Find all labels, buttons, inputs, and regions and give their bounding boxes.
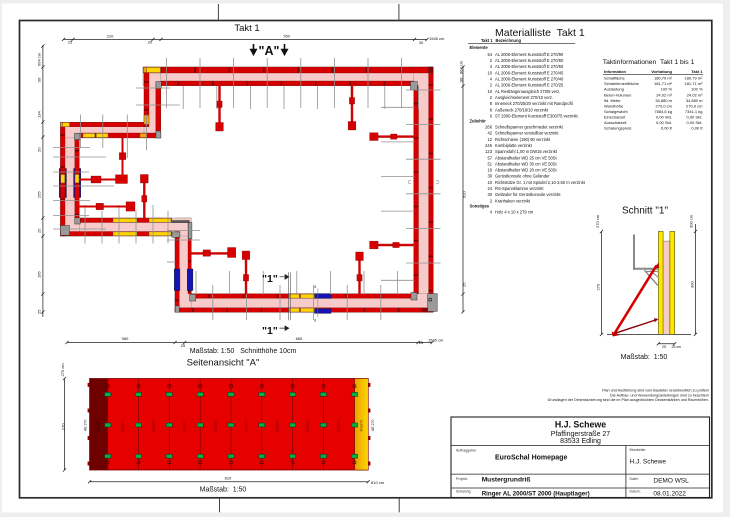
svg-text:Sonstiges: Sonstiges: [470, 203, 490, 208]
svg-text:24,02 m³: 24,02 m³: [656, 92, 672, 97]
svg-text:0,00 Std.: 0,00 Std.: [656, 120, 672, 125]
svg-text:Ausgleichselement 270/10 verz.: Ausgleichselement 270/10 verz.: [495, 95, 553, 100]
svg-text:300: 300: [690, 281, 695, 288]
svg-text:Kranhaken verzinkt: Kranhaken verzinkt: [495, 198, 531, 203]
svg-text:Datei:: Datei:: [630, 477, 639, 481]
svg-text:270 cm: 270 cm: [595, 214, 600, 228]
svg-text:Inneneck 270/25/20 verzinkt mi: Inneneck 270/25/20 verzinkt mit Randprof…: [495, 101, 573, 106]
svg-text:Ausschalzeit: Ausschalzeit: [604, 120, 627, 125]
svg-text:Wandhöhe: Wandhöhe: [604, 103, 624, 108]
svg-text:270: 270: [596, 283, 601, 290]
svg-text:AL 2000-Element Kunststoff E 2: AL 2000-Element Kunststoff E 270/25: [495, 83, 564, 88]
svg-text:"1": "1": [262, 273, 278, 285]
svg-text:7341,1 kg: 7341,1 kg: [685, 109, 703, 114]
svg-text:EuroSchal Homepage: EuroSchal Homepage: [495, 455, 567, 462]
svg-text:54: 54: [487, 52, 492, 57]
svg-text:760: 760: [283, 33, 290, 38]
svg-text:0,00 Std.: 0,00 Std.: [656, 115, 672, 120]
svg-text:AL 2000-Element Kunststoff E 2: AL 2000-Element Kunststoff E 270/50: [495, 64, 564, 69]
svg-text:AL 2000-Element Kunststoff E 2: AL 2000-Element Kunststoff E 270/60: [495, 58, 564, 63]
svg-text:"A": "A": [259, 44, 280, 58]
svg-text:Außeneck 270/10/10 verzinkt: Außeneck 270/10/10 verzinkt: [495, 107, 549, 112]
svg-text:90x270: 90x270: [152, 420, 156, 432]
svg-text:25: 25: [37, 228, 42, 233]
svg-text:Pfaffingerstraße 27: Pfaffingerstraße 27: [551, 431, 611, 438]
svg-text:980: 980: [122, 336, 129, 341]
svg-text:810 cm: 810 cm: [371, 480, 385, 485]
svg-text:Richtstütze Gr. 1 mit Spindel: Richtstütze Gr. 1 mit Spindel 2,10-3,60 …: [495, 180, 586, 185]
svg-text:10: 10: [487, 180, 492, 185]
svg-text:100 %: 100 %: [691, 87, 703, 92]
svg-text:0,00 €: 0,00 €: [691, 126, 703, 131]
svg-text:Bearbeiter: Bearbeiter: [630, 448, 647, 452]
svg-text:42: 42: [487, 131, 492, 136]
svg-text:Maßstab: 1:50 Schnitthöhe 10: Maßstab: 1:50 Schnitthöhe 10cm: [190, 348, 297, 355]
svg-text:20: 20: [37, 147, 42, 152]
svg-text:0,00 €: 0,00 €: [661, 126, 673, 131]
svg-text:lfd. Meter: lfd. Meter: [604, 98, 621, 103]
svg-text:90x270: 90x270: [214, 420, 218, 432]
svg-text:50x270: 50x270: [96, 420, 100, 432]
svg-text:270,0 cm: 270,0 cm: [656, 103, 673, 108]
svg-text:Richtschiene (190) 90 verzinkt: Richtschiene (190) 90 verzinkt: [495, 137, 551, 142]
svg-text:H.J. Schewe: H.J. Schewe: [555, 420, 606, 430]
svg-text:Grundlagen der Dimensionierung: Grundlagen der Dimensionierung sind die …: [547, 398, 709, 402]
svg-text:10: 10: [487, 89, 492, 94]
svg-text:ST 2000-Element Kunststoff E30: ST 2000-Element Kunststoff E300/75 verzi…: [495, 113, 579, 118]
svg-text:Beton-Volumen: Beton-Volumen: [604, 92, 631, 97]
svg-text:Auslastung: Auslastung: [604, 87, 624, 92]
svg-text:Schnellspanner geschmiedet ver: Schnellspanner geschmiedet verzinkt: [495, 125, 564, 130]
svg-text:Die Aufbau- und Verwendungsanl: Die Aufbau- und Verwendungsanleitungen s…: [610, 393, 709, 397]
svg-text:180,79 m²: 180,79 m²: [684, 76, 703, 81]
svg-text:RS-Spannklamme verzinkt: RS-Spannklamme verzinkt: [495, 186, 544, 191]
svg-text:181,71 m²: 181,71 m²: [684, 81, 703, 86]
svg-text:90x270: 90x270: [121, 420, 125, 432]
svg-text:'30': '30': [458, 77, 463, 83]
svg-text:Taktinformationen Takt 1 bis: Taktinformationen Takt 1 bis 1: [603, 59, 695, 66]
svg-text:664 cm: 664 cm: [458, 60, 463, 74]
svg-text:134: 134: [37, 111, 42, 118]
svg-text:Abstandhalter WD 25 cm VE 50St: Abstandhalter WD 25 cm VE 50St: [495, 155, 558, 160]
svg-text:10: 10: [487, 70, 492, 75]
svg-text:25: 25: [37, 309, 42, 314]
svg-text:246: 246: [485, 143, 493, 148]
svg-text:Projekt:: Projekt:: [456, 477, 468, 481]
svg-text:AL Restlängenausgleich 270/5 v: AL Restlängenausgleich 270/5 verz.: [495, 89, 560, 94]
svg-text:25: 25: [662, 345, 666, 349]
svg-text:270: 270: [61, 423, 66, 430]
svg-text:Ringer AL 2000/ST 2000 (Hauptl: Ringer AL 2000/ST 2000 (Hauptlager): [482, 490, 590, 497]
svg-text:Spannstahl 1,00 m DW15 verzink: Spannstahl 1,00 m DW15 verzinkt: [495, 149, 558, 154]
svg-text:0,00 Std.: 0,00 Std.: [686, 115, 702, 120]
svg-text:Schalung: Schalung: [456, 490, 471, 494]
svg-text:Schalgewicht: Schalgewicht: [604, 109, 628, 114]
svg-text:Holz 4 x 10 x 279 cm: Holz 4 x 10 x 279 cm: [495, 210, 534, 215]
svg-text:Takt 1: Takt 1: [691, 69, 703, 74]
svg-text:1545 cm: 1545 cm: [429, 36, 445, 41]
svg-text:210: 210: [107, 33, 114, 38]
svg-text:810: 810: [225, 475, 232, 480]
svg-text:Schnitt "1": Schnitt "1": [622, 205, 668, 216]
svg-text:Geländer für Gerüstkonsole ver: Geländer für Gerüstkonsole verzinkt: [495, 192, 561, 197]
svg-text:Takt 1: Takt 1: [234, 23, 259, 34]
svg-text:30: 30: [487, 174, 492, 179]
svg-text:Kombiplatte verzinkt: Kombiplatte verzinkt: [495, 143, 533, 148]
svg-text:1545 cm: 1545 cm: [428, 338, 444, 343]
svg-text:24,02 m³: 24,02 m³: [687, 92, 703, 97]
svg-text:Takt 1: Takt 1: [481, 38, 493, 43]
svg-text:51: 51: [487, 161, 492, 166]
svg-text:Seitenansicht "A": Seitenansicht "A": [187, 358, 260, 369]
svg-text:Maßstab: 1:50: Maßstab: 1:50: [200, 487, 247, 494]
svg-text:30: 30: [419, 40, 424, 45]
svg-text:AL 2000-Element Kunststoff E 2: AL 2000-Element Kunststoff E 270/45: [495, 70, 564, 75]
svg-text:Abstandhalter WD 20 cm VE 50St: Abstandhalter WD 20 cm VE 50St: [495, 168, 558, 173]
svg-text:Gerüstkonsole ohne Geländer: Gerüstkonsole ohne Geländer: [495, 174, 550, 179]
svg-text:90x270: 90x270: [275, 420, 279, 432]
svg-text:25: 25: [181, 343, 186, 348]
svg-text:Mustergrundriß: Mustergrundriß: [482, 477, 531, 484]
svg-text:Auftraggeber: Auftraggeber: [456, 449, 477, 453]
svg-text:AE 270: AE 270: [371, 419, 375, 431]
svg-text:Vorhaltung: Vorhaltung: [651, 69, 672, 74]
svg-text:'30': '30': [37, 77, 42, 83]
svg-text:270 cm: 270 cm: [60, 363, 65, 377]
svg-text:"1": "1": [262, 325, 278, 337]
svg-text:57: 57: [487, 155, 492, 160]
svg-text:270,0 cm: 270,0 cm: [686, 103, 703, 108]
svg-text:DEMO WSL: DEMO WSL: [653, 477, 689, 484]
svg-text:Abstandhalter WD 30 cm VE 50St: Abstandhalter WD 30 cm VE 50St: [495, 161, 558, 166]
svg-text:Zubehör: Zubehör: [470, 118, 487, 123]
svg-text:123: 123: [485, 149, 493, 154]
svg-text:Schnellspanner verstellbar ver: Schnellspanner verstellbar verzinkt: [495, 131, 559, 136]
svg-text:181,71 m²: 181,71 m²: [654, 81, 673, 86]
svg-text:266: 266: [485, 125, 493, 130]
svg-text:H.J. Schewe: H.J. Schewe: [630, 459, 667, 466]
svg-text:AE 270: AE 270: [84, 419, 88, 431]
svg-text:195: 195: [37, 271, 42, 278]
svg-text:30: 30: [487, 192, 492, 197]
svg-text:20: 20: [148, 40, 153, 45]
svg-text:83533 Edling: 83533 Edling: [560, 438, 601, 445]
svg-text:255: 255: [37, 191, 42, 198]
svg-text:40x270: 40x270: [360, 420, 364, 432]
svg-text:Information: Information: [604, 69, 627, 74]
svg-text:12: 12: [487, 137, 492, 142]
svg-text:8: 8: [314, 285, 316, 289]
svg-text:Einschalzeit: Einschalzeit: [604, 115, 626, 120]
svg-text:Elemente: Elemente: [470, 45, 489, 50]
svg-text:100 %: 100 %: [661, 87, 673, 92]
svg-text:AL 2000-Element Kunststoff E 2: AL 2000-Element Kunststoff E 270/90: [495, 52, 564, 57]
svg-text:90x270: 90x270: [337, 420, 341, 432]
svg-text:665: 665: [296, 336, 303, 341]
svg-text:34,880 m: 34,880 m: [686, 98, 703, 103]
svg-text:25: 25: [462, 282, 467, 287]
svg-text:Plan und Ausführung sind vom B: Plan und Ausführung sind vom Bauleiter v…: [602, 389, 709, 393]
svg-text:AL 2000-Element Kunststoff E 2: AL 2000-Element Kunststoff E 270/40: [495, 77, 564, 82]
svg-text:8: 8: [314, 318, 316, 322]
svg-text:25 cm: 25 cm: [672, 345, 682, 349]
svg-text:18: 18: [487, 168, 492, 173]
svg-text:Bezeichnung: Bezeichnung: [496, 38, 522, 43]
svg-text:7884,6 kg: 7884,6 kg: [654, 109, 672, 114]
svg-text:90x270: 90x270: [306, 420, 310, 432]
svg-text:24: 24: [487, 186, 492, 191]
svg-text:620: 620: [462, 191, 467, 198]
svg-text:300 cm: 300 cm: [689, 214, 694, 228]
svg-text:0,00 Std.: 0,00 Std.: [686, 120, 702, 125]
svg-text:Schalelementfläche: Schalelementfläche: [604, 81, 640, 86]
svg-text:90x270: 90x270: [245, 420, 249, 432]
svg-text:25: 25: [68, 40, 73, 45]
svg-text:Maßstab: 1:50: Maßstab: 1:50: [621, 354, 668, 361]
svg-text:Schalfläche: Schalfläche: [604, 76, 625, 81]
svg-text:90x270: 90x270: [183, 420, 187, 432]
svg-text:Schalungspreis: Schalungspreis: [604, 126, 631, 131]
svg-text:664 cm: 664 cm: [37, 52, 42, 66]
svg-text:25: 25: [419, 340, 424, 345]
svg-text:180,79 m²: 180,79 m²: [654, 76, 673, 81]
svg-text:34,880 m: 34,880 m: [655, 98, 672, 103]
svg-text:Datum:: Datum:: [630, 490, 641, 494]
svg-text:08.01.2022: 08.01.2022: [653, 490, 686, 497]
